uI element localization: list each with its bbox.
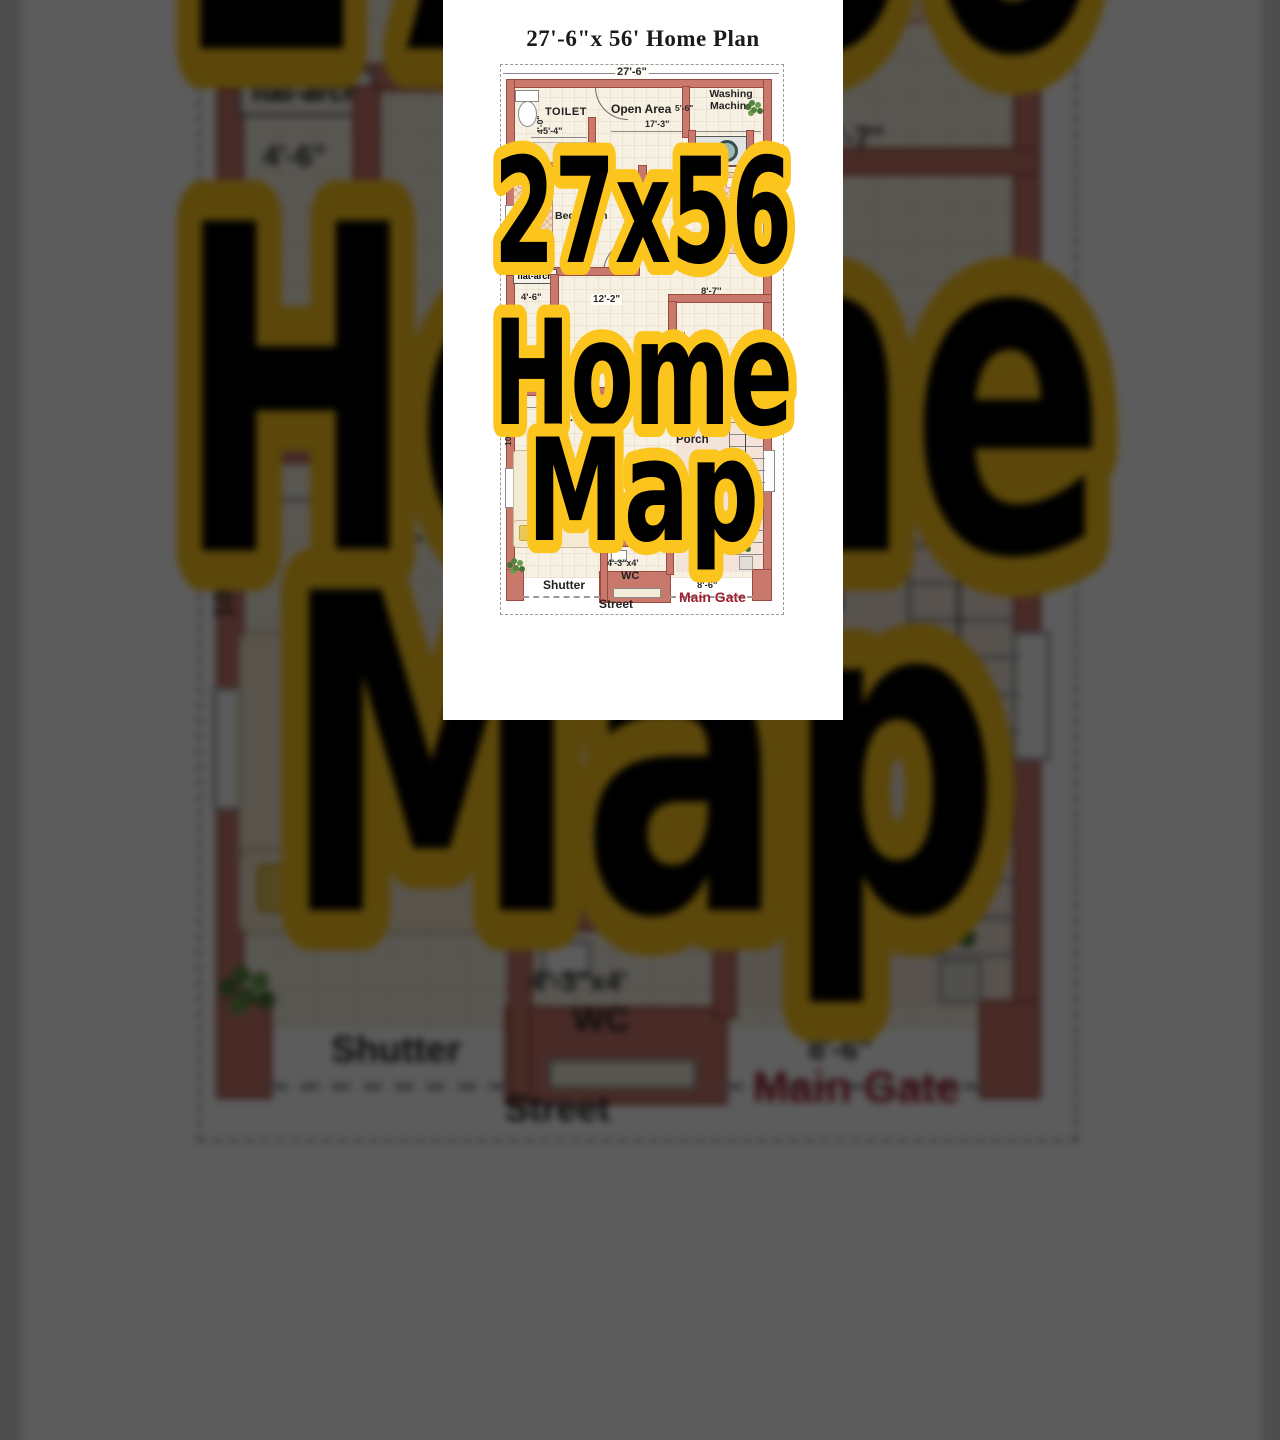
video-frame: 27'-6"x 56' Home Plan 27'-6" 4'-0" TOILE… (443, 0, 843, 720)
caption-line-1: 27x56 (494, 127, 792, 297)
caption-line-3: Map (527, 409, 759, 574)
caption-overlay: 27x56 Home Map (443, 0, 843, 720)
